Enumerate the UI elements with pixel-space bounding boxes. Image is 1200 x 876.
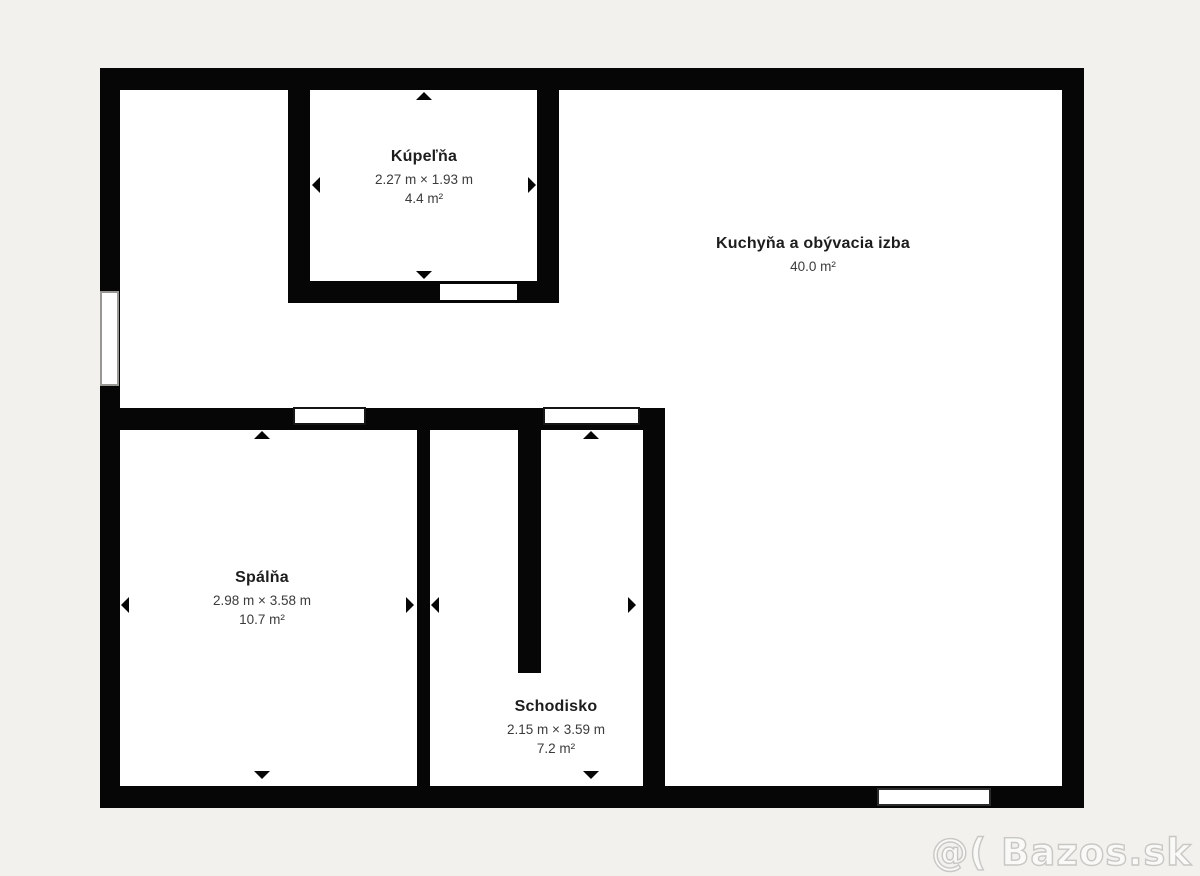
floorplan: Kúpeľňa 2.27 m × 1.93 m 4.4 m² Kuchyňa a… xyxy=(0,0,1200,876)
dimension-arrow-down-icon xyxy=(583,771,599,779)
wall-stair-divider xyxy=(518,428,541,673)
wall-bathroom-left xyxy=(288,88,310,303)
wall-outer-left xyxy=(100,68,120,808)
room-dimensions: 2.98 m × 3.58 m xyxy=(213,591,311,610)
room-label-kitchen-living: Kuchyňa a obývacia izba 40.0 m² xyxy=(716,234,910,276)
room-name: Kuchyňa a obývacia izba xyxy=(716,234,910,253)
door-opening-bedroom xyxy=(293,407,366,425)
dimension-arrow-down-icon xyxy=(254,771,270,779)
dimension-arrow-left-icon xyxy=(121,597,129,613)
dimension-arrow-up-icon xyxy=(583,431,599,439)
room-area: 10.7 m² xyxy=(213,610,311,629)
room-dimensions: 2.27 m × 1.93 m xyxy=(375,170,473,189)
wall-outer-right xyxy=(1062,68,1084,808)
wall-outer-top xyxy=(100,68,1084,90)
dimension-arrow-up-icon xyxy=(254,431,270,439)
wall-bathroom-bottom xyxy=(288,281,559,303)
room-name: Spálňa xyxy=(213,568,311,587)
window-left-wall xyxy=(100,291,119,386)
door-opening-bathroom xyxy=(440,284,517,300)
room-area: 4.4 m² xyxy=(375,189,473,208)
room-label-staircase: Schodisko 2.15 m × 3.59 m 7.2 m² xyxy=(507,697,605,758)
wall-staircase-right xyxy=(643,428,665,786)
room-label-bathroom: Kúpeľňa 2.27 m × 1.93 m 4.4 m² xyxy=(375,147,473,208)
watermark-bazos-logo: @( Bazos.sk xyxy=(931,831,1192,874)
room-area: 40.0 m² xyxy=(716,257,910,276)
door-opening-living-room xyxy=(877,788,991,806)
wall-bedroom-right xyxy=(417,428,430,786)
dimension-arrow-left-icon xyxy=(431,597,439,613)
dimension-arrow-right-icon xyxy=(528,177,536,193)
room-label-bedroom: Spálňa 2.98 m × 3.58 m 10.7 m² xyxy=(213,568,311,629)
room-area: 7.2 m² xyxy=(507,739,605,758)
dimension-arrow-right-icon xyxy=(628,597,636,613)
door-opening-staircase xyxy=(543,407,640,425)
dimension-arrow-right-icon xyxy=(406,597,414,613)
room-name: Kúpeľňa xyxy=(375,147,473,166)
room-name: Schodisko xyxy=(507,697,605,716)
room-dimensions: 2.15 m × 3.59 m xyxy=(507,720,605,739)
wall-bathroom-right xyxy=(537,88,559,303)
dimension-arrow-down-icon xyxy=(416,271,432,279)
dimension-arrow-left-icon xyxy=(312,177,320,193)
dimension-arrow-up-icon xyxy=(416,92,432,100)
